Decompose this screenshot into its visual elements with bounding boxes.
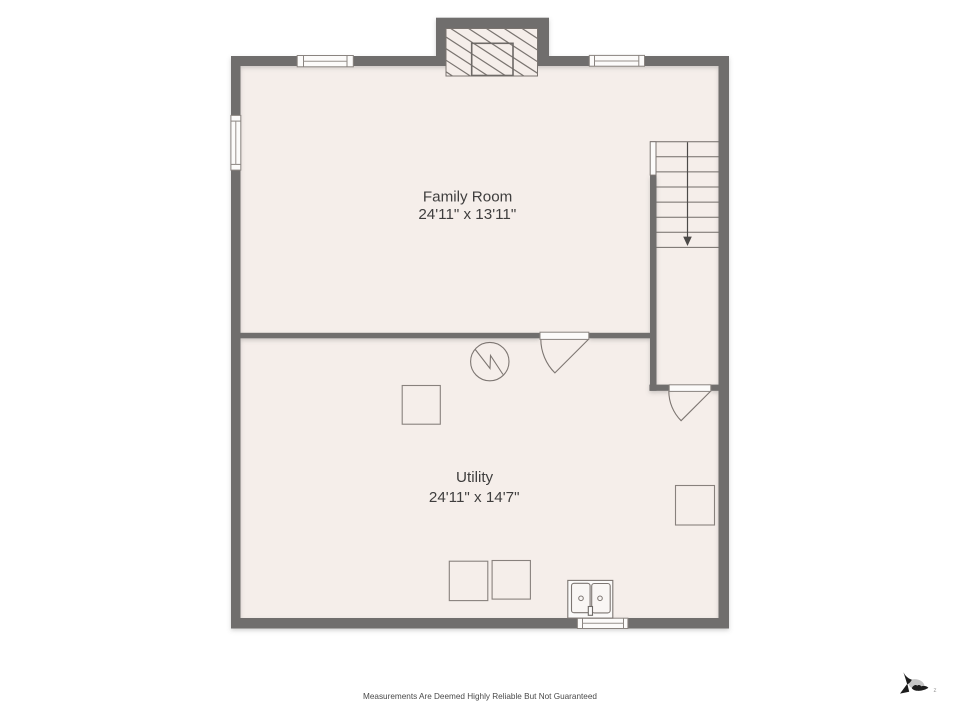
svg-text:Family Room: Family Room <box>423 188 512 205</box>
svg-text:z: z <box>934 688 937 694</box>
svg-text:Measurements Are Deemed Highly: Measurements Are Deemed Highly Reliable … <box>363 692 597 701</box>
svg-text:24'11" x 14'7": 24'11" x 14'7" <box>429 489 520 506</box>
svg-text:Utility: Utility <box>456 469 494 486</box>
svg-text:24'11" x 13'11": 24'11" x 13'11" <box>418 206 516 223</box>
